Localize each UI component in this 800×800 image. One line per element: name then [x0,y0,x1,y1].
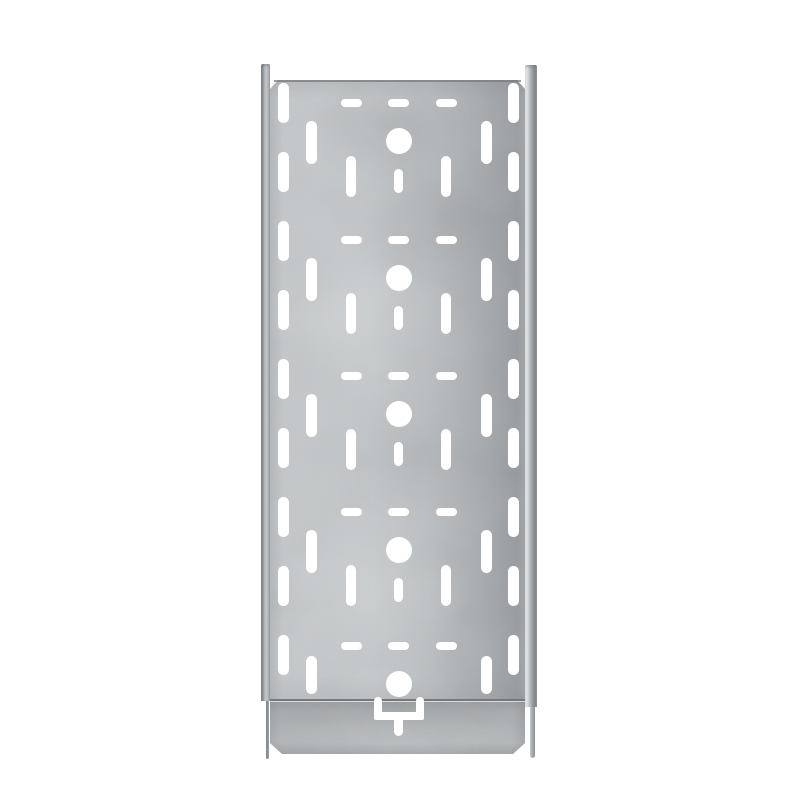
perforation-circle [386,537,412,563]
left-coupler-wall-edge [266,701,270,759]
cable-tray [0,0,800,800]
perforation-edge-slot [508,359,519,399]
perforation-dash [436,372,457,380]
perforation-edge-slot [278,221,289,261]
perforation-circle [386,128,412,154]
perforation-edge-slot [278,152,289,192]
perforation-dash [341,372,362,380]
perforation-circle [386,265,412,291]
perforation-edge-slot [278,290,289,330]
perforation-edge-slot [508,83,519,123]
perforation-slot [481,394,492,437]
perforation-slot [441,565,451,606]
perforation-slot-small [394,306,403,330]
perforation-slot [481,530,492,573]
perforation-slot [481,258,492,301]
perforation-edge-slot [508,566,519,606]
perforation-edge-slot [508,497,519,537]
right-side-wall-edge [525,65,537,707]
perforation-edge-slot [278,566,289,606]
perforation-dash [388,642,409,650]
perforation-slot [481,656,492,694]
perforation-edge-slot [508,152,519,192]
latch-stem-cutout [394,713,404,736]
perforation-dash [388,99,409,107]
perforation-dash [341,236,362,244]
perforation-dash [388,236,409,244]
perforation-edge-slot [508,221,519,261]
right-coupler-wall-edge [530,707,535,758]
tray-base-panel [270,80,525,701]
perforation-edge-slot [278,359,289,399]
perforation-dash [436,99,457,107]
perforation-slot [306,656,317,694]
perforation-edge-slot [278,428,289,468]
perforation-slot [441,293,451,334]
perforation-slot [346,293,356,334]
perforation-slot-small [394,578,403,602]
perforation-slot [306,530,317,573]
perforation-dash [388,508,409,516]
perforation-slot [306,121,317,164]
perforation-circle [386,671,412,697]
perforation-slot [346,429,356,470]
perforation-slot [481,121,492,164]
perforation-dash [341,642,362,650]
perforation-dash [388,372,409,380]
perforation-slot [441,156,451,197]
perforation-slot-small [394,169,403,193]
perforation-dash [341,508,362,516]
perforation-edge-slot [278,497,289,537]
perforation-slot [306,258,317,301]
perforation-slot [346,565,356,606]
perforation-edge-slot [278,83,289,123]
perforation-dash [436,642,457,650]
perforation-edge-slot [508,290,519,330]
perforation-dash [341,99,362,107]
seam-highlight [270,701,525,702]
product-photo-canvas [0,0,800,800]
perforation-circle [386,401,412,427]
perforation-slot [346,156,356,197]
panel-top-edge [274,80,521,82]
perforation-edge-slot [278,635,289,675]
perforation-dash [436,236,457,244]
perforation-slot [306,394,317,437]
perforation-dash [436,508,457,516]
perforation-edge-slot [508,635,519,675]
perforation-slot-small [394,442,403,466]
perforation-edge-slot [508,428,519,468]
left-side-wall-edge [261,64,270,701]
perforation-slot [441,429,451,470]
